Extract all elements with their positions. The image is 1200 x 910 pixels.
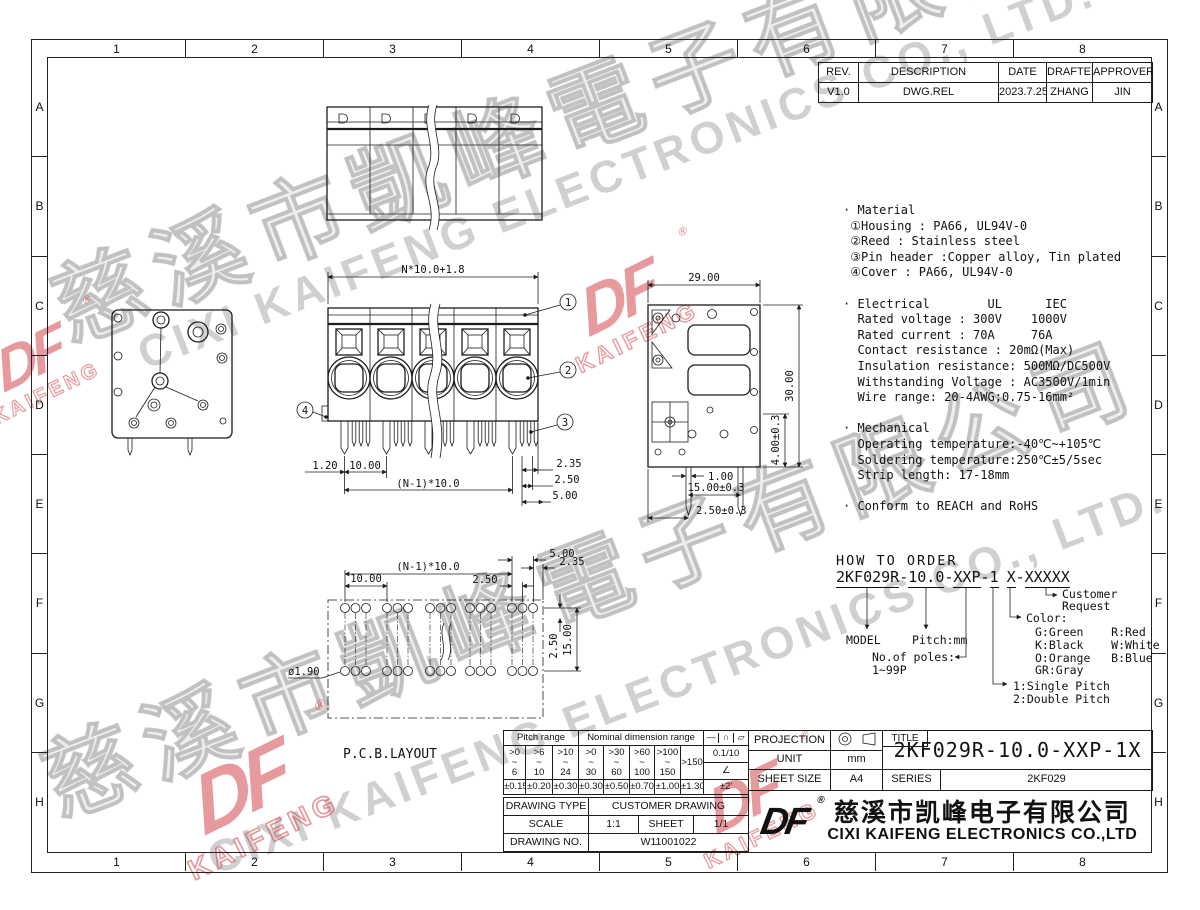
- grid-numbers-top: 12345678: [48, 40, 1151, 57]
- dim-2-50-03: 2.50±0.3: [696, 505, 747, 517]
- label-color-options: G:Green R:Red K:Black W:White O:Orange B…: [1035, 626, 1160, 677]
- rev-header: REV.: [819, 63, 859, 83]
- balloon-1: 1: [565, 297, 571, 309]
- projection-symbol-icon: [831, 731, 883, 751]
- end-view-outline: [112, 310, 232, 438]
- range-over-cell: >150: [681, 746, 704, 780]
- angle-icon: ∠: [704, 763, 749, 780]
- revision-header-row: REV. DESCRIPTION DATE DRAFTER APPROVER: [819, 63, 1153, 83]
- balloon-4: 4: [302, 405, 308, 417]
- grid-label: 3: [323, 40, 461, 57]
- pcb-dim-hole: ø1.90: [288, 666, 320, 678]
- title-cell: TITLE 2KF029R-10.0-XXP-1X: [883, 731, 1153, 770]
- end-view-pins: [128, 438, 192, 455]
- revision-row: V1.0 DWG.REL 2023.7.25 ZHANG JIN: [819, 83, 1153, 103]
- dim-2-35: 2.35: [556, 458, 581, 470]
- hole-group: [508, 604, 538, 676]
- dim-total-width: N*10.0+1.8: [401, 264, 464, 276]
- label-double-pitch: 2:Double Pitch: [1013, 692, 1110, 706]
- grid-label: 1: [48, 40, 185, 57]
- pcb-dim-v250: 2.50: [548, 633, 560, 658]
- grid-label: 4: [461, 40, 599, 57]
- dim-30-00: 30.00: [784, 370, 796, 402]
- pcb-dim-pitch: 10.00: [350, 573, 382, 585]
- drawing-no-row: DRAWING NO. W11001022: [504, 834, 749, 852]
- label-poles-range: 1~99P: [872, 663, 907, 677]
- range-cell: >100~150: [655, 746, 681, 780]
- unit-label: UNIT: [749, 751, 831, 770]
- front-view-top-dimension: N*10.0+1.8: [328, 264, 538, 304]
- title-label: TITLE: [883, 731, 928, 747]
- side-view-body: [648, 305, 760, 467]
- drawing-sheet: 慈溪市凱峰電子有限公司 CIXI KAIFENG ELECTRONICS CO.…: [0, 0, 1200, 910]
- pole: [328, 329, 370, 454]
- pitch-range-header: Pitch range: [504, 731, 579, 746]
- front-view-break-line: [428, 304, 442, 458]
- nominal-range-header: Nominal dimension range: [579, 731, 704, 746]
- pole: [370, 329, 412, 454]
- pcb-board-outline: [328, 600, 543, 718]
- company-name-english: CIXI KAIFENG ELECTRONICS CO.,LTD: [827, 826, 1137, 844]
- tolerance-range-row: >0~6 >6~10 >10~24 >0~30 >30~60 >60~100 >…: [504, 746, 749, 763]
- top-view-drawing: [325, 102, 543, 232]
- side-view-dimensions: 29.00 30.00 4.00±0.3 1.00 15.00±0.3 2.50…: [648, 272, 803, 522]
- date-header: DATE: [999, 63, 1047, 83]
- dim-29-00: 29.00: [688, 272, 720, 284]
- tolerance-table: Pitch range Nominal dimension range —∩▱ …: [503, 730, 749, 795]
- sheet-value: 1/1: [694, 816, 749, 834]
- grid-label: G: [32, 653, 47, 752]
- tolerance-value: ±0.30: [553, 780, 579, 795]
- drawing-type-row: DRAWING TYPE CUSTOMER DRAWING: [504, 798, 749, 816]
- range-cell: >0~6: [504, 746, 526, 780]
- grid-label: 2: [185, 853, 323, 871]
- dim-10-00: 10.00: [349, 460, 381, 472]
- approver-header: APPROVER: [1093, 63, 1153, 83]
- end-view-holes: [114, 312, 227, 428]
- series-value: 2KF029: [941, 770, 1153, 791]
- dim-2-50: 2.50: [554, 474, 579, 486]
- flatness-tolerance: 0.1/10: [704, 746, 749, 763]
- drawing-type-value: CUSTOMER DRAWING: [589, 798, 749, 816]
- dim-5-00: 5.00: [552, 490, 577, 502]
- grid-label: 5: [599, 40, 737, 57]
- grid-label: 6: [737, 40, 875, 57]
- grid-label: D: [32, 355, 47, 454]
- flatness-icon: ▱: [733, 733, 748, 742]
- sheet-label: SHEET: [639, 816, 694, 834]
- range-cell: >60~100: [630, 746, 655, 780]
- range-cell: >6~10: [526, 746, 553, 780]
- end-view-drawing: [103, 298, 243, 466]
- arc-icon: ∩: [718, 733, 733, 742]
- dim-15-00: 15.00±0.3: [688, 482, 745, 494]
- grid-label: 7: [875, 40, 1013, 57]
- top-view-break-line: [426, 105, 439, 230]
- grid-label: H: [1151, 752, 1166, 851]
- pole: [496, 329, 538, 454]
- pcb-layout-label: P.C.B.LAYOUT: [343, 747, 437, 762]
- label-request: Request: [1062, 599, 1110, 613]
- grid-label: F: [32, 553, 47, 652]
- description-value: DWG.REL: [859, 83, 999, 103]
- pcb-dim-235: 2.35: [559, 556, 584, 568]
- company-name-chinese: 慈溪市凯峰电子有限公司: [834, 800, 1131, 826]
- label-single-pitch: 1:Single Pitch: [1013, 679, 1110, 693]
- grid-numbers-bottom: 12345678: [48, 853, 1151, 871]
- scale-value: 1:1: [589, 816, 639, 834]
- scale-row: SCALE 1:1 SHEET 1/1: [504, 816, 749, 834]
- drawing-type-label: DRAWING TYPE: [504, 798, 589, 816]
- unit-value: mm: [831, 751, 883, 770]
- pcb-dimensions: (N-1)*10.0 10.00 2.50 5.00 2.35 15.00 2.…: [288, 548, 585, 678]
- dim-n-1-10: (N-1)*10.0: [396, 478, 459, 490]
- sheet-size-label: SHEET SIZE: [749, 770, 831, 791]
- drawing-info-table: DRAWING TYPE CUSTOMER DRAWING SCALE 1:1 …: [503, 797, 749, 852]
- pole: [454, 329, 496, 454]
- grid-label: A: [32, 58, 47, 156]
- grid-label: H: [32, 752, 47, 851]
- projection-row: PROJECTION TITLE 2KF029R-10.0-XXP-1X: [749, 731, 1153, 751]
- drafter-value: ZHANG: [1047, 83, 1093, 103]
- grid-letters-left: ABCDEFGH: [32, 58, 47, 851]
- title-block-table: PROJECTION TITLE 2KF029R-10.0-XXP-1X UNI…: [748, 730, 1153, 791]
- range-cell: >30~60: [604, 746, 630, 780]
- specifications-text: · Material ①Housing : PA66, UL94V-0 ②Ree…: [843, 203, 1155, 515]
- label-color: Color:: [1026, 611, 1068, 625]
- sheet-size-value: A4: [831, 770, 883, 791]
- pcb-holes: [341, 604, 538, 676]
- grid-label: B: [32, 156, 47, 255]
- scale-label: SCALE: [504, 816, 589, 834]
- tolerance-value: ±0.70: [630, 780, 655, 795]
- drafter-header: DRAFTER: [1047, 63, 1093, 83]
- how-to-order-section: HOW TO ORDER 2KF029R-10.0-XXP-1X-XXXXX M…: [830, 553, 1165, 728]
- grid-label: 4: [461, 853, 599, 871]
- grid-label: A: [1151, 58, 1166, 156]
- grid-label: 7: [875, 853, 1013, 871]
- pcb-layout-drawing: (N-1)*10.0 10.00 2.50 5.00 2.35 15.00 2.…: [278, 548, 610, 740]
- tolerance-value: ±0.50: [604, 780, 630, 795]
- label-pitch: Pitch:mm: [912, 633, 967, 647]
- angle-tolerance: ±2': [704, 780, 749, 795]
- grid-label: 1: [48, 853, 185, 871]
- hole-group: [426, 604, 456, 676]
- sheet-size-row: SHEET SIZE A4 SERIES 2KF029: [749, 770, 1153, 791]
- date-value: 2023.7.25: [999, 83, 1047, 103]
- grid-label: 6: [737, 853, 875, 871]
- rev-value: V1.0: [819, 83, 859, 103]
- tolerance-value: ±1.30: [681, 780, 704, 795]
- drawing-no-value: W11001022: [589, 834, 749, 852]
- tolerance-value: ±1.00: [655, 780, 681, 795]
- pcb-dim-v1500: 15.00: [562, 624, 574, 656]
- grid-label: 5: [599, 853, 737, 871]
- description-header: DESCRIPTION: [859, 63, 999, 83]
- company-names: 慈溪市凯峰电子有限公司 CIXI KAIFENG ELECTRONICS CO.…: [812, 800, 1153, 844]
- company-df-logo-icon: DF®: [757, 801, 809, 844]
- projection-label: PROJECTION: [749, 731, 831, 751]
- dim-1-20: 1.20: [312, 460, 337, 472]
- range-cell: >10~24: [553, 746, 579, 780]
- grid-label: 8: [1013, 853, 1151, 871]
- geometry-symbols-cell: —∩▱: [704, 731, 749, 746]
- tolerance-value: ±0.15: [504, 780, 526, 795]
- range-cell: >0~30: [579, 746, 604, 780]
- hole-group: [466, 604, 496, 676]
- hole-group: [341, 604, 371, 676]
- approver-value: JIN: [1093, 83, 1153, 103]
- tolerance-value: ±0.30: [579, 780, 604, 795]
- tolerance-header-row: Pitch range Nominal dimension range —∩▱: [504, 731, 749, 746]
- pcb-break-line: [441, 623, 451, 660]
- revision-table: REV. DESCRIPTION DATE DRAFTER APPROVER V…: [818, 62, 1153, 103]
- side-view-drawing: 29.00 30.00 4.00±0.3 1.00 15.00±0.3 2.50…: [632, 262, 845, 582]
- grid-label: 8: [1013, 40, 1151, 57]
- label-model: MODEL: [846, 633, 881, 647]
- drawing-no-label: DRAWING NO.: [504, 834, 589, 852]
- balloon-2: 2: [565, 365, 571, 377]
- balloon-3: 3: [562, 417, 568, 429]
- tolerance-values-row: ±0.15 ±0.20 ±0.30 ±0.30 ±0.50 ±0.70 ±1.0…: [504, 780, 749, 795]
- pcb-dim-250: 2.50: [472, 574, 497, 586]
- front-view-drawing: N*10.0+1.8: [285, 258, 600, 513]
- straightness-icon: —: [704, 733, 718, 742]
- pcb-dim-row: (N-1)*10.0: [396, 561, 459, 573]
- tolerance-value: ±0.20: [526, 780, 553, 795]
- series-label: SERIES: [883, 770, 941, 791]
- grid-label: E: [32, 454, 47, 553]
- grid-label: 3: [323, 853, 461, 871]
- dim-4-00: 4.00±0.3: [770, 415, 782, 466]
- company-block: DF® 慈溪市凯峰电子有限公司 CIXI KAIFENG ELECTRONICS…: [748, 790, 1153, 853]
- grid-label: C: [32, 256, 47, 355]
- label-poles: No.of poles:: [872, 650, 955, 664]
- grid-label: 2: [185, 40, 323, 57]
- hole-group: [383, 604, 413, 676]
